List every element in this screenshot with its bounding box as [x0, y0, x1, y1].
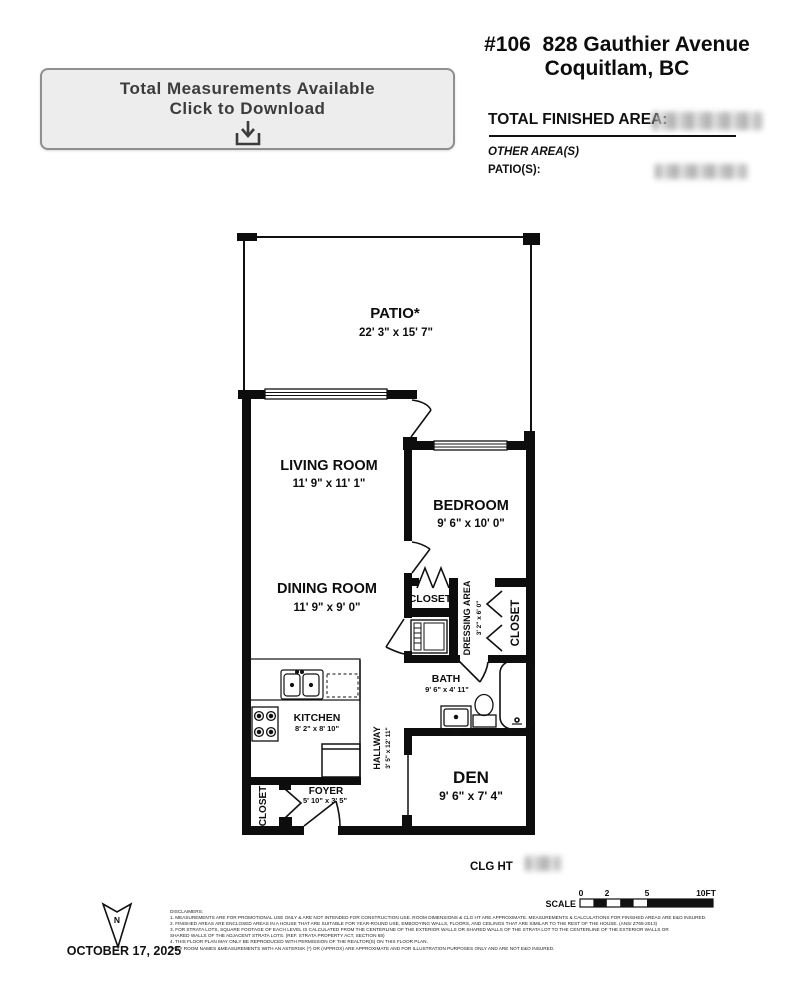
bedroom-closet-bifold-door [417, 568, 449, 588]
patio-dims: 22' 3" x 15' 7" [359, 327, 433, 339]
bedroom-label: BEDROOM [433, 498, 509, 514]
toilet [473, 695, 496, 728]
bedroom-window [434, 441, 507, 450]
dining-room-label: DINING ROOM [277, 581, 377, 597]
dressing-area-label: DRESSING AREA [462, 580, 472, 655]
windows [265, 389, 507, 450]
north-label: N [114, 915, 120, 925]
dressing-closet-label: CLOSET [510, 600, 522, 647]
ceiling-height-value-redacted [525, 856, 561, 871]
floorplan-page: #106 828 Gauthier Avenue Coquitlam, BC T… [0, 0, 792, 1000]
fixtures [250, 620, 534, 777]
patio-outline [243, 237, 532, 441]
scale-tick-0: 0 [579, 888, 584, 898]
patio-label: PATIO* [370, 305, 420, 322]
den-dims: 9' 6" x 7' 4" [439, 789, 503, 803]
bath-door [459, 661, 488, 682]
living-room-window [265, 389, 387, 399]
entry-closet-bifold-door [285, 789, 301, 818]
bedroom-dims: 9' 6" x 10' 0" [437, 518, 505, 530]
disclaimers: DISCLAIMERS: 1. MEASUREMENTS ARE FOR PRO… [170, 909, 770, 952]
dining-room-dims: 11' 9" x 9' 0" [294, 602, 361, 614]
living-room-label: LIVING ROOM [280, 458, 377, 474]
stove [252, 707, 278, 741]
entry-closet-label: CLOSET [258, 786, 269, 827]
kitchen-dims: 8' 2" x 8' 10" [295, 724, 339, 733]
partition-lines [360, 660, 408, 817]
living-room-dims: 11' 9" x 11' 1" [293, 478, 366, 490]
bedroom-door [412, 542, 430, 573]
washer-dryer [411, 620, 447, 653]
den-label: DEN [453, 768, 489, 787]
patio-door [411, 400, 431, 437]
kitchen-sink [281, 670, 323, 699]
room-labels: PATIO* 22' 3" x 15' 7" LIVING ROOM 11' 9… [258, 305, 522, 826]
kitchen-label: KITCHEN [294, 712, 341, 724]
scale-tick-2: 2 [605, 888, 610, 898]
disclaimer-line: * ANY ROOM NAMES &MEASUREMENTS WITH AN A… [170, 946, 770, 952]
bedroom-closet-label: CLOSET [409, 593, 452, 605]
dressing-area-dims: 3' 2" x 6' 0" [476, 601, 483, 636]
dishwasher [327, 674, 358, 697]
ceiling-height-label: CLG HT [470, 861, 513, 873]
laundry-closet-door [386, 619, 404, 654]
scale-tick-10ft: 10FT [696, 888, 717, 898]
scale-tick-5: 5 [645, 888, 650, 898]
bath-dims: 9' 6" x 4' 11" [425, 685, 469, 694]
scale-bar: SCALE 0 2 5 10FT [545, 888, 716, 909]
hallway-dims: 3' 5" x 12' 11" [385, 727, 392, 768]
hallway-label: HALLWAY [372, 726, 382, 769]
scale-label: SCALE [545, 899, 576, 909]
north-arrow-icon: N [103, 904, 131, 947]
foyer-dims: 5' 10" x 3' 5" [303, 796, 347, 805]
floor-plan: PATIO* 22' 3" x 15' 7" LIVING ROOM 11' 9… [0, 0, 792, 1000]
dressing-closet-bifold-door [487, 591, 502, 651]
refrigerator [322, 744, 360, 777]
bath-label: BATH [432, 673, 460, 685]
